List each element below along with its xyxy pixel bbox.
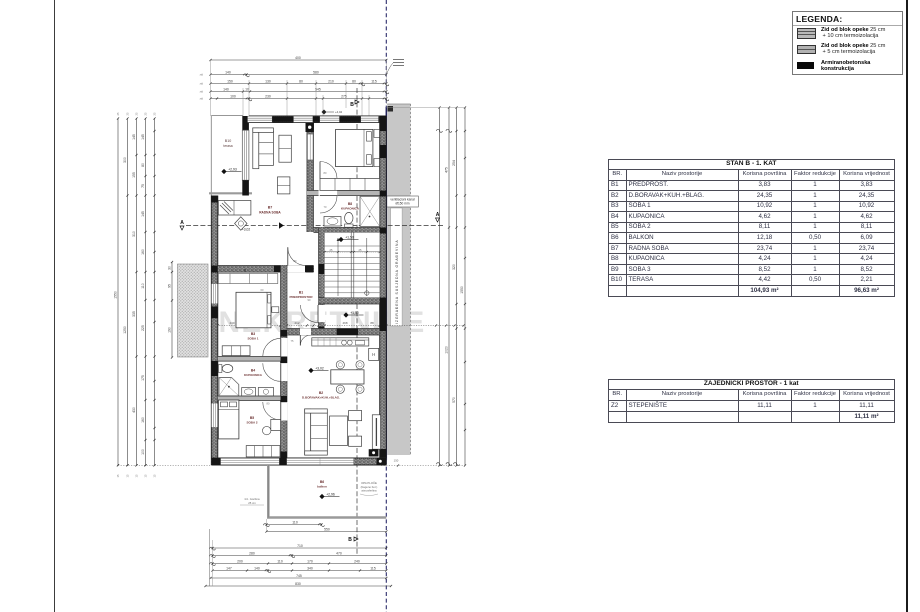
svg-text:Ø150 mm: Ø150 mm <box>396 202 410 206</box>
svg-text:atmosferlina: atmosferlina <box>361 489 377 493</box>
svg-text:147: 147 <box>226 566 232 570</box>
svg-text:210: 210 <box>328 79 334 83</box>
svg-text:terasa: terasa <box>223 144 232 148</box>
svg-text:B10: B10 <box>225 139 231 143</box>
svg-text:110: 110 <box>292 520 298 524</box>
svg-text:240: 240 <box>229 321 234 325</box>
svg-text:145: 145 <box>141 134 145 140</box>
svg-text:B4: B4 <box>251 369 255 373</box>
svg-text:468: 468 <box>342 321 347 325</box>
svg-text:100: 100 <box>230 94 236 98</box>
svg-text:150: 150 <box>227 79 233 83</box>
svg-text:B1: B1 <box>299 291 303 295</box>
svg-text:80: 80 <box>352 79 356 83</box>
svg-text:230: 230 <box>265 94 271 98</box>
svg-text:IZGRAĐENA SUSJEDNA GRAĐEVINA: IZGRAĐENA SUSJEDNA GRAĐEVINA <box>395 239 399 324</box>
svg-text:75: 75 <box>291 339 294 343</box>
svg-text:zid: zid <box>200 73 204 77</box>
svg-text:1020: 1020 <box>445 346 449 354</box>
svg-text:200: 200 <box>237 559 243 563</box>
svg-text:+2,96: +2,96 <box>326 493 335 497</box>
svg-text:15: 15 <box>126 474 130 477</box>
svg-text:RADNA SOBA: RADNA SOBA <box>259 211 281 215</box>
svg-text:0: 0 <box>244 268 246 272</box>
svg-text:140: 140 <box>225 70 231 74</box>
svg-text:470: 470 <box>336 551 342 555</box>
svg-text:B3: B3 <box>251 332 255 336</box>
svg-text:115: 115 <box>370 566 376 570</box>
svg-text:D.BORAVAK+KUH.+BLAG.: D.BORAVAK+KUH.+BLAG. <box>302 396 340 400</box>
svg-text:1550: 1550 <box>114 291 118 299</box>
svg-text:145: 145 <box>141 211 145 217</box>
svg-text:25: 25 <box>126 112 130 115</box>
svg-text:70: 70 <box>324 205 327 209</box>
svg-text:+1,50: +1,50 <box>345 236 354 240</box>
svg-text:115: 115 <box>371 79 377 83</box>
svg-text:140: 140 <box>223 87 229 91</box>
svg-text:95: 95 <box>168 284 172 288</box>
svg-text:570: 570 <box>452 397 456 403</box>
svg-text:KUPAONICA: KUPAONICA <box>244 373 263 377</box>
svg-text:240: 240 <box>354 559 360 563</box>
svg-text:SOBA 2: SOBA 2 <box>246 421 257 425</box>
svg-text:254: 254 <box>452 160 456 166</box>
svg-text:1550: 1550 <box>460 286 464 294</box>
svg-text:25: 25 <box>153 112 157 115</box>
svg-text:475: 475 <box>445 167 449 173</box>
svg-text:B5: B5 <box>250 416 254 420</box>
svg-text:zid: zid <box>200 82 204 86</box>
svg-text:+4,04: +4,04 <box>335 110 343 114</box>
svg-text:110: 110 <box>277 559 283 563</box>
svg-text:225: 225 <box>141 325 145 331</box>
svg-text:KUPAONICA: KUPAONICA <box>341 207 360 211</box>
svg-text:A: A <box>436 212 440 218</box>
svg-text:zid: zid <box>200 97 204 101</box>
svg-text:280: 280 <box>249 551 255 555</box>
svg-text:25: 25 <box>135 112 139 115</box>
svg-text:75: 75 <box>141 184 145 188</box>
svg-text:80: 80 <box>324 171 327 175</box>
svg-text:155: 155 <box>132 172 136 178</box>
svg-text:B7: B7 <box>268 206 273 210</box>
svg-text:15: 15 <box>135 474 139 477</box>
svg-text:320: 320 <box>452 264 456 270</box>
svg-text:140: 140 <box>254 566 260 570</box>
svg-text:60: 60 <box>261 288 264 292</box>
svg-text:+2,93: +2,93 <box>228 168 237 172</box>
svg-text:zid: zid <box>200 90 204 94</box>
svg-text:+3,02: +3,02 <box>315 367 324 371</box>
svg-text:30: 30 <box>168 266 172 270</box>
svg-text:H: H <box>372 352 375 357</box>
svg-text:25: 25 <box>144 112 148 115</box>
svg-text:SOBA 1: SOBA 1 <box>247 337 258 341</box>
svg-text:100: 100 <box>141 449 145 455</box>
svg-text:130: 130 <box>265 79 271 83</box>
svg-text:300: 300 <box>123 157 127 163</box>
svg-text:+1,50: +1,50 <box>350 311 359 315</box>
svg-text:25: 25 <box>116 112 120 115</box>
svg-text:15: 15 <box>153 474 157 477</box>
svg-text:B8: B8 <box>348 202 352 206</box>
svg-text:400: 400 <box>295 56 301 60</box>
svg-text:PREDPROSTOR: PREDPROSTOR <box>289 295 313 299</box>
svg-text:175: 175 <box>141 375 145 381</box>
svg-text:10: 10 <box>245 87 249 91</box>
svg-text:170: 170 <box>307 559 313 563</box>
svg-text:335: 335 <box>132 311 136 317</box>
svg-text:15: 15 <box>116 474 120 477</box>
svg-text:B2: B2 <box>319 391 323 395</box>
svg-text:550: 550 <box>324 527 330 531</box>
svg-text:balkon: balkon <box>317 485 327 489</box>
svg-text:1250: 1250 <box>123 326 127 334</box>
svg-text:430: 430 <box>132 407 136 413</box>
svg-text:160: 160 <box>141 249 145 255</box>
svg-text:150: 150 <box>394 459 399 463</box>
svg-text:160: 160 <box>141 417 145 423</box>
svg-text:B: B <box>350 102 354 108</box>
svg-text:B6: B6 <box>320 480 324 484</box>
svg-text:745: 745 <box>296 574 302 578</box>
svg-text:15: 15 <box>144 474 148 477</box>
svg-text:145: 145 <box>132 134 136 140</box>
svg-text:A: A <box>180 220 184 226</box>
svg-text:110: 110 <box>141 283 145 289</box>
svg-text:80: 80 <box>141 163 145 167</box>
svg-text:88: 88 <box>370 321 374 325</box>
svg-text:310: 310 <box>132 231 136 237</box>
svg-text:212: 212 <box>294 321 299 325</box>
svg-text:830: 830 <box>295 582 301 586</box>
svg-text:B: B <box>348 537 352 543</box>
svg-text:80: 80 <box>267 402 270 406</box>
svg-text:710: 710 <box>297 544 303 548</box>
svg-text:25 cm: 25 cm <box>248 501 256 505</box>
svg-text:190: 190 <box>168 327 172 333</box>
svg-text:80: 80 <box>299 79 303 83</box>
svg-text:340: 340 <box>307 566 313 570</box>
svg-text:580: 580 <box>313 70 319 74</box>
